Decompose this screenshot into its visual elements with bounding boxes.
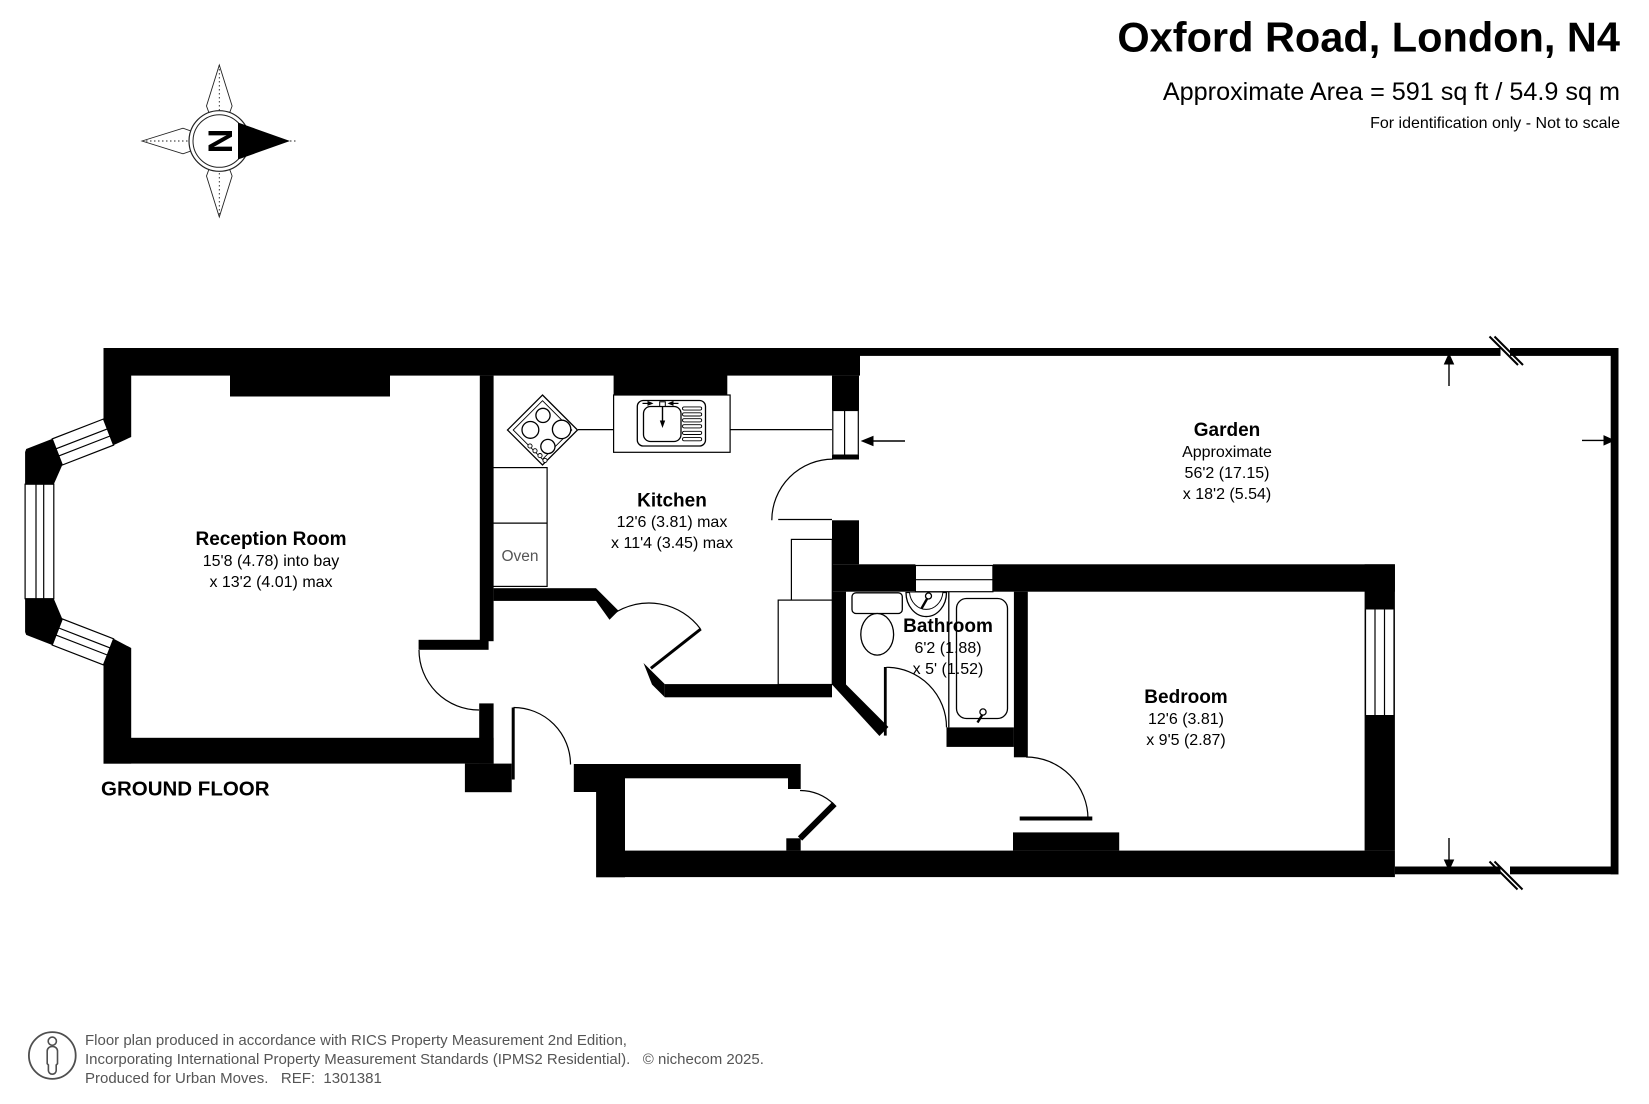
svg-text:Bathroom: Bathroom xyxy=(903,616,993,637)
svg-text:x 13'2 (4.01) max: x 13'2 (4.01) max xyxy=(209,574,332,591)
svg-text:Oven: Oven xyxy=(501,548,538,565)
svg-text:15'8 (4.78) into bay: 15'8 (4.78) into bay xyxy=(203,553,339,570)
svg-text:12'6 (3.81) max: 12'6 (3.81) max xyxy=(617,514,728,531)
svg-text:6'2 (1.88): 6'2 (1.88) xyxy=(914,640,981,657)
svg-text:Oxford Road, London, N4: Oxford Road, London, N4 xyxy=(1117,14,1620,61)
svg-text:x 5' (1.52): x 5' (1.52) xyxy=(913,661,984,678)
svg-text:Bedroom: Bedroom xyxy=(1144,687,1227,708)
svg-text:Produced for Urban Moves. RE: Produced for Urban Moves. REF: 1301381 xyxy=(85,1070,382,1087)
svg-text:Approximate: Approximate xyxy=(1182,444,1272,461)
svg-text:N: N xyxy=(200,129,238,154)
svg-text:For identification only - Not: For identification only - Not to scale xyxy=(1370,115,1620,132)
svg-text:12'6 (3.81): 12'6 (3.81) xyxy=(1148,711,1224,728)
svg-text:56'2 (17.15): 56'2 (17.15) xyxy=(1185,465,1270,482)
svg-text:Kitchen: Kitchen xyxy=(637,491,707,512)
svg-text:x 11'4 (3.45) max: x 11'4 (3.45) max xyxy=(611,535,733,552)
svg-text:Incorporating International Pr: Incorporating International Property Mea… xyxy=(85,1051,764,1068)
svg-text:Garden: Garden xyxy=(1194,420,1261,441)
svg-text:GROUND FLOOR: GROUND FLOOR xyxy=(101,778,270,801)
svg-text:Reception Room: Reception Room xyxy=(196,529,347,550)
svg-text:x 9'5 (2.87): x 9'5 (2.87) xyxy=(1146,732,1226,749)
svg-text:x 18'2 (5.54): x 18'2 (5.54) xyxy=(1183,486,1271,503)
svg-text:Floor plan produced in accorda: Floor plan produced in accordance with R… xyxy=(85,1032,627,1049)
svg-text:Approximate Area = 591 sq ft /: Approximate Area = 591 sq ft / 54.9 sq m xyxy=(1163,78,1620,106)
